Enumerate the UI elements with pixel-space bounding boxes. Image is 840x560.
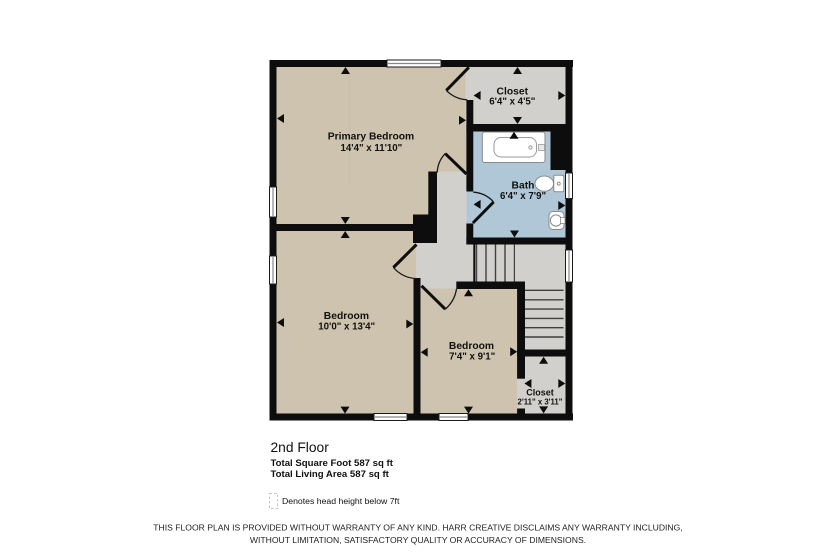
svg-text:14'4" x 11'10": 14'4" x 11'10" [341,143,403,154]
svg-text:WITHOUT LIMITATION, SATISFACTO: WITHOUT LIMITATION, SATISFACTORY QUALITY… [250,535,586,545]
svg-text:Closet: Closet [526,388,554,398]
svg-text:10'0" x 13'4": 10'0" x 13'4" [318,322,375,333]
svg-text:7'4" x 9'1": 7'4" x 9'1" [449,352,495,363]
svg-text:Total Living Area 587 sq ft: Total Living Area 587 sq ft [271,469,390,480]
svg-text:Denotes head height below 7ft: Denotes head height below 7ft [282,496,400,506]
svg-text:Bedroom: Bedroom [324,311,369,322]
svg-text:Total Square Foot 587 sq ft: Total Square Foot 587 sq ft [271,458,394,469]
svg-text:Bedroom: Bedroom [449,341,494,352]
svg-text:2'11" x 3'11": 2'11" x 3'11" [518,398,563,407]
svg-text:THIS FLOOR PLAN IS PROVIDED WI: THIS FLOOR PLAN IS PROVIDED WITHOUT WARR… [153,523,682,533]
svg-text:Primary Bedroom: Primary Bedroom [328,132,414,143]
svg-text:6'4" x 4'5": 6'4" x 4'5" [489,97,535,108]
svg-text:Bath: Bath [512,181,535,192]
svg-text:2nd Floor: 2nd Floor [271,440,330,455]
svg-text:6'4" x 7'9": 6'4" x 7'9" [500,191,546,202]
